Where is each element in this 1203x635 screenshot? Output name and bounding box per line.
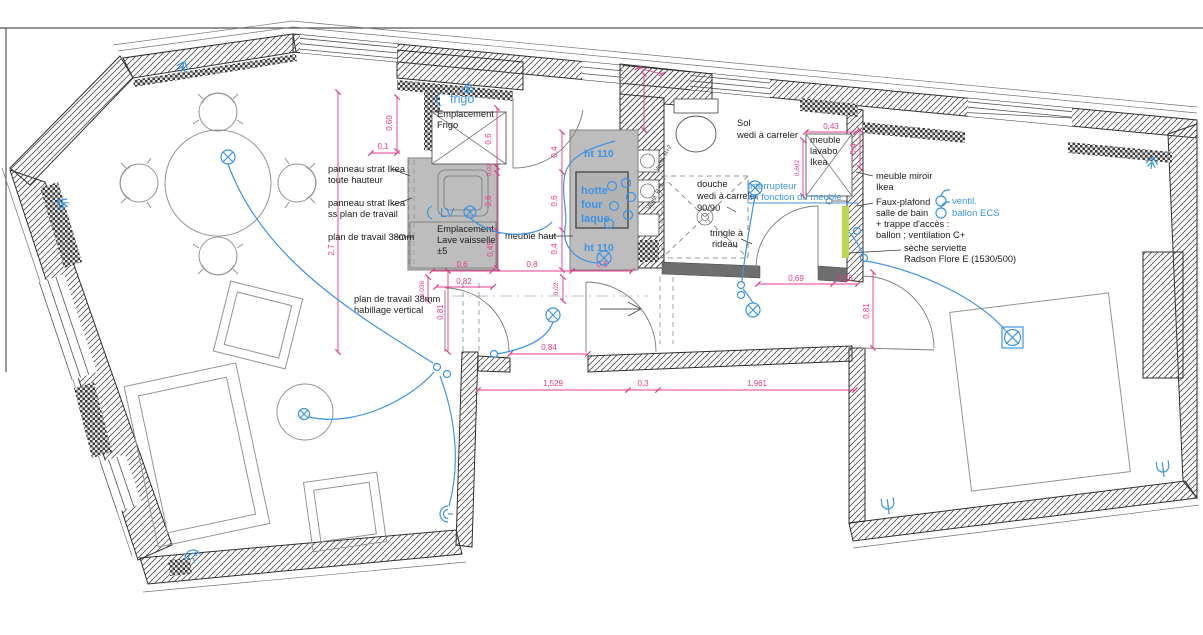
living-door — [445, 288, 509, 352]
ceiling-light-hall — [746, 303, 760, 317]
armchair-1 — [213, 281, 302, 369]
label-sol-1: Sol — [737, 118, 750, 128]
ceiling-light-corridor — [546, 308, 560, 322]
switch — [434, 364, 441, 371]
dim-0-602: 0,602 — [794, 159, 801, 176]
label-sol-2: wedi à carreler — [736, 130, 798, 140]
label-faux-plafond-2: salle de bain — [876, 208, 928, 218]
label-ht110-top: ht 110 — [584, 148, 614, 160]
dim-0-8-base: 0,8 — [526, 260, 538, 269]
entrance-arrow — [600, 302, 641, 316]
wall-chimney — [1143, 252, 1183, 378]
label-hotte-1: hotte — [581, 185, 608, 197]
dim-2-7: 2,7 — [327, 244, 336, 256]
floor-plan-canvas: Ventil. R+2 Ventil. R+1 — [0, 0, 1203, 635]
label-empl-lv-2: Lave vaisselle — [437, 235, 495, 245]
ceiling-light-dining — [221, 150, 235, 164]
label-panneau-full-1: panneau strat Ikea — [328, 164, 406, 174]
wall-entry-stub — [478, 356, 510, 372]
label-interrupteur-1: interrupteur — [748, 181, 797, 192]
dim-0-4-bot: 0,4 — [550, 243, 559, 255]
switch — [444, 371, 451, 378]
switch — [491, 351, 498, 358]
label-douche-1: douche — [697, 179, 728, 189]
dim-0-6-sink: 0,6 — [484, 195, 493, 207]
label-lavabo-2: lavabo — [810, 146, 837, 156]
wc-cistern — [674, 99, 718, 113]
dim-0-3: 0,3 — [637, 379, 649, 388]
wall-hall-bottom — [588, 346, 852, 372]
window-top-4 — [968, 98, 1072, 126]
floor-plan-drawing: Ventil. R+2 Ventil. R+1 — [0, 0, 1203, 635]
switches — [434, 190, 951, 378]
dim-0-81-bed: 0,81 — [862, 303, 871, 319]
label-miroir-2: Ikea — [876, 182, 894, 192]
dim-0-84: 0,84 — [541, 343, 557, 352]
wc-bowl — [676, 116, 716, 152]
bed — [950, 293, 1131, 491]
bathroom-door — [756, 206, 818, 268]
label-lv: LV — [440, 206, 455, 220]
label-douche-3: 90/90 — [697, 203, 720, 213]
label-plan-vertical-2: habillage vertical — [354, 305, 423, 315]
label-faux-plafond-1: Faux-plafond — [876, 197, 930, 207]
dim-0-28: 0,28 — [837, 274, 853, 283]
label-ventil-2: ballon ECS — [952, 208, 1000, 219]
label-empl-frigo-2: Frigo — [437, 120, 458, 130]
label-plan-travail: plan de travail 38mm — [328, 232, 415, 242]
label-panneau-ss-2: ss plan de travail — [328, 209, 398, 219]
towel-radiator — [842, 206, 849, 258]
dim-0-43: 0,43 — [823, 122, 839, 131]
switch — [738, 292, 745, 299]
label-frigo: frigo — [450, 92, 474, 106]
dim-0-81-hall: 0,81 — [436, 304, 445, 320]
dim-1-961: 1,961 — [747, 379, 768, 388]
dashed-traces — [452, 277, 673, 351]
label-faux-plafond-3: + trappe d'accès : — [876, 219, 949, 229]
entrance-door — [586, 282, 656, 352]
dim-0-4-top: 0,4 — [550, 146, 559, 158]
label-seche-1: sèche serviette — [904, 243, 967, 253]
label-panneau-ss-1: panneau strat Ikea — [328, 198, 406, 208]
ventil-point — [936, 196, 946, 206]
dim-0-60: 0,60 — [385, 115, 394, 131]
switch — [738, 282, 745, 289]
label-faux-plafond-4: ballon ; ventilation C+ — [876, 230, 965, 240]
dining-table — [165, 130, 271, 236]
label-ht110-bottom: ht 110 — [584, 242, 614, 254]
dim-0-6-mid: 0,6 — [550, 195, 559, 207]
wall-corner-top-left — [10, 56, 133, 185]
dim-1-529: 1,529 — [543, 379, 564, 388]
dim-0-69: 0,69 — [788, 274, 804, 283]
label-hotte-2: four — [581, 199, 603, 211]
dim-0-6-base-l: 0,6 — [456, 260, 468, 269]
label-tringle-1: tringle à — [710, 228, 744, 238]
dim-0-02-a: 0,02 — [486, 163, 493, 176]
ventil-point — [936, 208, 946, 218]
label-hotte-3: laque — [581, 213, 610, 225]
wall-bedroom-left — [849, 348, 865, 523]
label-empl-lv-1: Emplacement — [437, 224, 494, 234]
label-interrupteur-2: en fonction du meuble — [748, 192, 841, 203]
dim-0-4-wall: 0,4 — [849, 143, 858, 155]
label-empl-frigo-1: Emplacement — [437, 109, 494, 119]
dim-0-82: 0,82 — [456, 277, 472, 286]
label-miroir-1: meuble miroir — [876, 171, 932, 181]
side-table — [277, 384, 333, 440]
label-ventil-1: ventil. — [952, 196, 977, 207]
label-seche-2: Radson Flore E (1530/500) — [904, 254, 1016, 264]
dim-0-6-frigo: 0,6 — [484, 133, 493, 145]
wall-living-right — [456, 352, 478, 547]
wall-bedroom-bottom — [849, 481, 1197, 541]
label-tringle-2: rideau — [712, 239, 738, 249]
label-lavabo-1: meuble — [810, 135, 841, 145]
table-lamp — [299, 409, 310, 420]
label-lavabo-3: Ikea — [810, 157, 828, 167]
dim-0-1: 0,1 — [377, 142, 389, 151]
dim-0-02-b: 0,02 — [553, 282, 560, 295]
label-empl-lv-3: ±5 — [437, 246, 447, 256]
label-plan-vertical-1: plan de travail 38mm — [354, 294, 441, 304]
label-panneau-full-2: toute hauteur — [328, 175, 383, 185]
